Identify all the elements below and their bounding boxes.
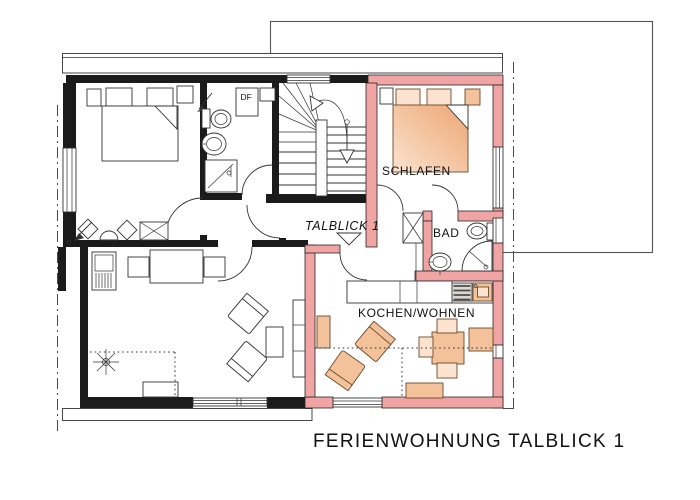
dining-chair-bottom bbox=[437, 363, 457, 378]
nightstand-2 bbox=[465, 89, 480, 105]
sideboard-bottom bbox=[406, 383, 443, 398]
wall-bottom-left-a bbox=[80, 397, 193, 408]
wall-outer-stub bbox=[58, 247, 66, 291]
ap-wall-bottom-b bbox=[382, 397, 503, 408]
pillow-w bbox=[147, 88, 173, 106]
ap-wall-left bbox=[305, 245, 315, 397]
nightstand bbox=[380, 88, 393, 104]
pillow bbox=[396, 89, 420, 106]
wall-bath-bottom bbox=[200, 193, 242, 200]
floor-plan-drawing: DF bbox=[0, 0, 700, 500]
ap-wall-entry bbox=[305, 245, 340, 253]
pillow-w bbox=[106, 88, 132, 106]
eaves-band-top bbox=[63, 54, 503, 74]
toilet-bowl-2 bbox=[467, 223, 487, 239]
window-left bbox=[63, 148, 76, 212]
ap-wall-bottom-a bbox=[305, 397, 333, 408]
window-kitchen-bottom bbox=[333, 398, 382, 407]
roof-window-label: DF bbox=[241, 92, 252, 102]
wall-bottom-left-b bbox=[267, 397, 308, 408]
bedroom-label: SCHLAFEN bbox=[382, 164, 451, 178]
chair-w-right bbox=[204, 257, 225, 277]
toilet-tank bbox=[202, 109, 210, 128]
bath-shelf bbox=[260, 88, 275, 101]
stair-newel-wall bbox=[316, 120, 327, 196]
nightstand-w bbox=[87, 89, 101, 106]
ap-wall-right-1 bbox=[493, 85, 503, 147]
table-w bbox=[150, 250, 203, 283]
window-bottom-left bbox=[193, 398, 267, 406]
eaves-band-bottom bbox=[63, 409, 313, 421]
ap-wall-bad-bottom bbox=[415, 271, 503, 281]
nightstand-w-2 bbox=[177, 86, 193, 103]
kitchen-sink-basin bbox=[478, 287, 489, 297]
plan-caption: FERIENWOHNUNG TALBLICK 1 bbox=[313, 431, 625, 452]
dining-chair-left bbox=[419, 337, 433, 357]
apartment-label: TALBLICK 1 bbox=[305, 219, 380, 233]
bench bbox=[143, 382, 178, 397]
toilet-bowl bbox=[211, 110, 231, 128]
floor-plan-page: DF bbox=[0, 0, 700, 500]
ap-wall-right-3 bbox=[493, 243, 503, 345]
ap-wall-top bbox=[368, 75, 503, 85]
window-bath-right bbox=[493, 218, 503, 243]
wall-living-left bbox=[80, 247, 88, 397]
chair-w-left bbox=[128, 257, 149, 277]
side-table bbox=[266, 327, 283, 357]
dining-chair-top bbox=[437, 319, 457, 333]
ap-wall-bed-bottom-a bbox=[423, 211, 432, 221]
wall-hall-stub bbox=[279, 238, 286, 247]
wall-left-upper bbox=[63, 83, 76, 148]
cabinet-right bbox=[293, 300, 305, 377]
bathroom-label: BAD bbox=[433, 226, 459, 240]
kitchen-living-label: KOCHEN/WOHNEN bbox=[358, 306, 475, 320]
window-bedroom-right bbox=[493, 147, 503, 208]
window-stairs-top bbox=[287, 75, 330, 83]
kitchen-counter bbox=[347, 281, 493, 303]
wall-corridor-bottom-a bbox=[63, 240, 218, 247]
toilet-tank-2 bbox=[487, 223, 493, 240]
window-kitchen-right bbox=[493, 345, 503, 358]
pillow bbox=[427, 89, 451, 106]
wall-bedroom-bath-stub bbox=[200, 235, 207, 247]
sideboard-left bbox=[317, 316, 330, 348]
